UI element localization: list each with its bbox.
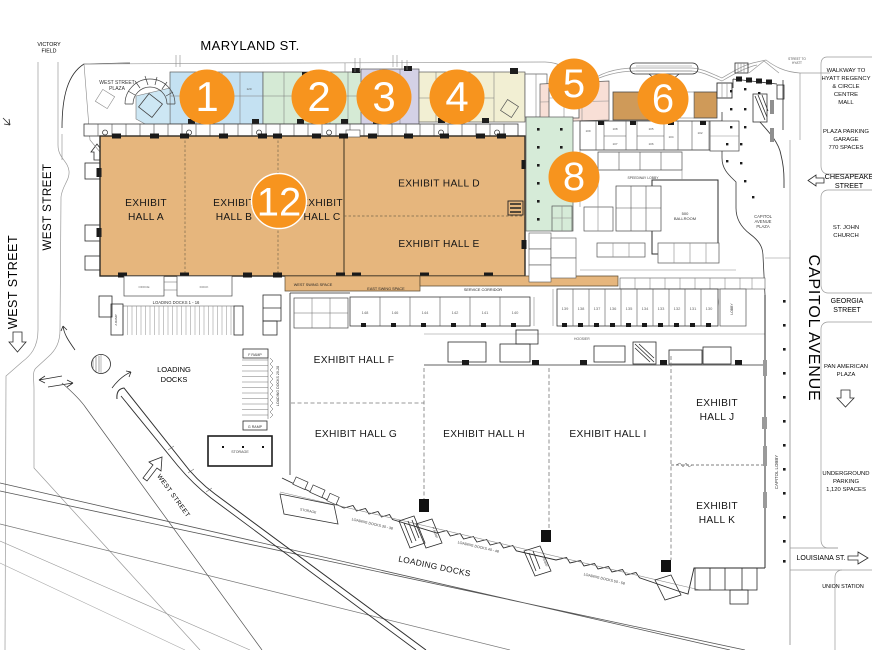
svg-text:CHURCH: CHURCH — [833, 233, 859, 239]
svg-text:109: 109 — [585, 129, 590, 133]
svg-text:MARYLAND ST.: MARYLAND ST. — [200, 38, 299, 53]
svg-text:CAPITOL LOBBY: CAPITOL LOBBY — [774, 455, 779, 489]
svg-text:BALLROOM: BALLROOM — [674, 216, 696, 221]
svg-text:12: 12 — [257, 181, 302, 225]
svg-text:LOADING DOCKS 1 - 16: LOADING DOCKS 1 - 16 — [153, 300, 200, 305]
svg-text:130: 130 — [706, 306, 713, 311]
svg-text:770 SPACES: 770 SPACES — [829, 145, 864, 151]
svg-text:CHESAPEAKE: CHESAPEAKE — [825, 172, 872, 181]
svg-text:LOADING DOCKS 20-28: LOADING DOCKS 20-28 — [276, 366, 280, 406]
svg-text:UNION STATION: UNION STATION — [822, 584, 864, 590]
svg-text:133: 133 — [658, 306, 665, 311]
svg-text:GEORGIA: GEORGIA — [831, 298, 864, 305]
svg-text:6: 6 — [652, 77, 674, 121]
svg-text:LOBBY: LOBBY — [730, 303, 734, 315]
svg-text:141: 141 — [482, 310, 489, 315]
svg-text:HALL K: HALL K — [699, 515, 736, 526]
svg-text:HYATT: HYATT — [792, 61, 802, 65]
svg-text:LOUISIANA ST.: LOUISIANA ST. — [796, 555, 845, 562]
svg-text:PLAZA: PLAZA — [837, 372, 856, 378]
svg-text:DOCK: DOCK — [200, 285, 209, 289]
svg-text:136: 136 — [610, 306, 617, 311]
svg-text:137: 137 — [594, 306, 601, 311]
svg-text:SERVICE CORRIDOR: SERVICE CORRIDOR — [464, 288, 503, 292]
svg-text:135: 135 — [626, 306, 633, 311]
svg-text:SPEEDWAY LOBBY: SPEEDWAY LOBBY — [627, 176, 659, 180]
svg-text:1,120 SPACES: 1,120 SPACES — [826, 487, 866, 493]
svg-text:EXHIBIT HALL I: EXHIBIT HALL I — [569, 429, 646, 440]
svg-text:ST. JOHN: ST. JOHN — [833, 225, 859, 231]
svg-text:102: 102 — [697, 131, 702, 135]
svg-text:108: 108 — [612, 127, 617, 131]
svg-text:G RAMP: G RAMP — [248, 425, 263, 429]
svg-text:STREET: STREET — [835, 181, 864, 190]
svg-text:144: 144 — [422, 310, 429, 315]
svg-text:PLAZA PARKING: PLAZA PARKING — [823, 129, 869, 135]
svg-text:148: 148 — [362, 310, 369, 315]
svg-text:140: 140 — [512, 310, 519, 315]
svg-text:107: 107 — [612, 142, 617, 146]
svg-text:WALKWAY TO: WALKWAY TO — [827, 68, 866, 74]
svg-text:3: 3 — [372, 73, 395, 120]
svg-text:HYATT REGENCY: HYATT REGENCY — [821, 76, 870, 82]
svg-text:PARKING: PARKING — [833, 479, 859, 485]
svg-text:LOADING: LOADING — [157, 365, 191, 374]
svg-text:HOOSIER: HOOSIER — [574, 337, 590, 341]
svg-text:EXHIBIT HALL H: EXHIBIT HALL H — [443, 429, 525, 440]
svg-text:4: 4 — [445, 73, 468, 120]
svg-text:142: 142 — [452, 310, 459, 315]
svg-text:WEST STREET: WEST STREET — [42, 163, 54, 250]
svg-text:EXHIBIT: EXHIBIT — [125, 198, 167, 209]
svg-text:105: 105 — [648, 127, 653, 131]
svg-text:WEST SWING SPACE: WEST SWING SPACE — [294, 283, 333, 287]
svg-text:CAPITOL AVENUE: CAPITOL AVENUE — [805, 255, 822, 402]
svg-text:A RAMP: A RAMP — [114, 314, 118, 325]
svg-text:HALL A: HALL A — [128, 212, 164, 223]
svg-text:1: 1 — [195, 73, 218, 120]
svg-text:CENTRE: CENTRE — [834, 92, 858, 98]
svg-text:138: 138 — [578, 306, 585, 311]
svg-text:GARAGE: GARAGE — [833, 137, 858, 143]
svg-text:EXHIBIT HALL G: EXHIBIT HALL G — [315, 429, 397, 440]
svg-text:146: 146 — [392, 310, 399, 315]
svg-text:PLAZA: PLAZA — [756, 224, 769, 229]
svg-text:STREET: STREET — [833, 307, 861, 314]
svg-text:HALL C: HALL C — [303, 212, 340, 223]
svg-text:139: 139 — [562, 306, 569, 311]
svg-text:EXHIBIT: EXHIBIT — [696, 501, 738, 512]
svg-text:WEST STREET: WEST STREET — [6, 235, 20, 329]
svg-text:PAN AMERICAN: PAN AMERICAN — [824, 364, 868, 370]
svg-text:131: 131 — [690, 306, 697, 311]
svg-text:DOCKS: DOCKS — [161, 375, 188, 384]
svg-text:EXHIBIT: EXHIBIT — [301, 198, 343, 209]
svg-text:EXHIBIT: EXHIBIT — [213, 198, 255, 209]
svg-text:EAST SWING SPACE: EAST SWING SPACE — [367, 287, 405, 291]
svg-text:UNDERGROUND: UNDERGROUND — [822, 471, 869, 477]
svg-text:5: 5 — [563, 62, 585, 106]
svg-text:2: 2 — [307, 73, 330, 120]
svg-text:& CIRCLE: & CIRCLE — [832, 84, 859, 90]
svg-text:FIELD: FIELD — [41, 49, 56, 55]
svg-text:EXHIBIT: EXHIBIT — [696, 398, 738, 409]
svg-text:F RAMP: F RAMP — [248, 353, 262, 357]
svg-text:106: 106 — [648, 142, 653, 146]
svg-text:MALL: MALL — [838, 100, 854, 106]
svg-text:134: 134 — [642, 306, 649, 311]
svg-text:STORAGE: STORAGE — [231, 450, 249, 454]
svg-text:132: 132 — [674, 306, 681, 311]
svg-text:120: 120 — [246, 87, 251, 91]
svg-text:VICTORY: VICTORY — [37, 42, 61, 48]
svg-text:HALL J: HALL J — [700, 412, 735, 423]
svg-text:EXHIBIT HALL F: EXHIBIT HALL F — [314, 355, 395, 366]
svg-text:104: 104 — [668, 135, 673, 139]
svg-text:OFFICE: OFFICE — [139, 285, 150, 289]
svg-text:HALL B: HALL B — [216, 212, 253, 223]
svg-text:EXHIBIT HALL D: EXHIBIT HALL D — [398, 179, 480, 190]
svg-text:EXHIBIT HALL E: EXHIBIT HALL E — [398, 239, 479, 250]
svg-text:PLAZA: PLAZA — [109, 86, 126, 92]
svg-text:8: 8 — [563, 155, 585, 199]
